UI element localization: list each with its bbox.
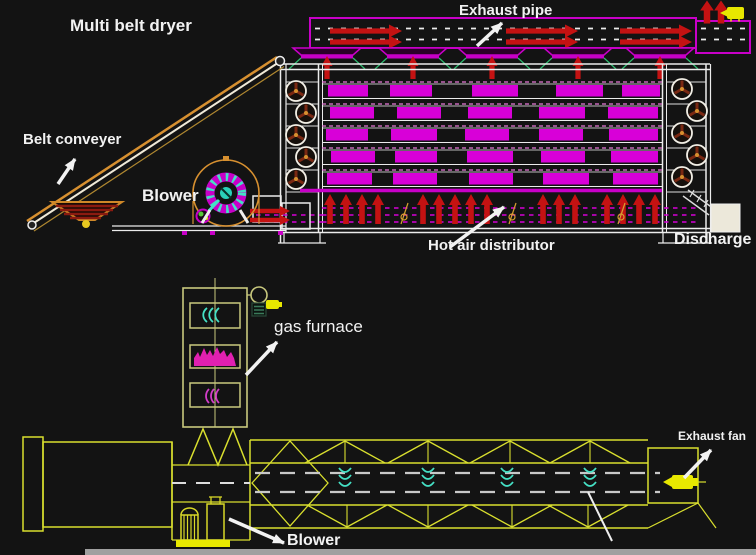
gas-furnace-label: gas furnace	[274, 318, 363, 337]
rotary-drum	[23, 429, 756, 555]
blower	[193, 156, 259, 226]
belt-conveyer-label: Belt conveyer	[23, 132, 121, 149]
discharge-chute	[683, 190, 740, 232]
gas-furnace	[183, 278, 247, 427]
exhaust-fan-unit	[648, 448, 716, 528]
exhaust-pipe-label: Exhaust pipe	[459, 3, 552, 20]
hot-air-distributor	[250, 194, 700, 229]
feed-hopper	[52, 202, 122, 228]
dryer-belts	[300, 82, 662, 191]
diagram-canvas: Multi belt dryer Exhaust pipe Belt conve…	[0, 0, 756, 555]
gas-burner	[247, 287, 282, 316]
discharge-label: Discharge	[674, 231, 751, 249]
dryer-system-drawing	[0, 0, 756, 555]
diagram-title: Multi belt dryer	[70, 17, 192, 36]
annotation-arrows	[58, 23, 711, 543]
blower-label: Blower	[142, 187, 199, 206]
hot-air-distributor-label: Hot air distributor	[428, 238, 555, 255]
exhaust-fan-label: Exhaust fan	[678, 430, 746, 443]
blower-bottom-label: Blower	[287, 532, 340, 550]
